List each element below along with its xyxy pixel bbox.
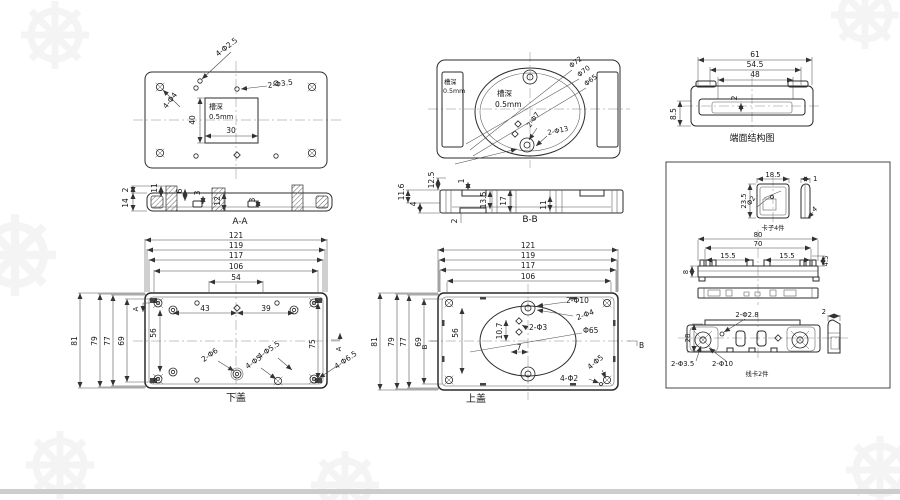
aa-caption: A-A [232, 217, 248, 227]
rail-dim-70: 70 [754, 240, 763, 248]
aa-dim-3a: 3 [193, 190, 202, 195]
rail-dim-4-5: 4.5 [822, 256, 830, 267]
aa-dim-12: 12 [213, 196, 222, 206]
bc-dim-79: 79 [90, 336, 99, 346]
tc-dim-117: 117 [521, 261, 536, 270]
clip-dim-1: 1 [813, 175, 817, 183]
tc-dim-119: 119 [521, 251, 536, 260]
section-b-b: 12.5 11.6 4 1 13.5 17 11 2 B-B [397, 171, 623, 225]
tc-dim-81: 81 [370, 337, 379, 347]
ef-dim-54-5: 54.5 [747, 60, 764, 69]
wc-caption: 线卡2件 [746, 369, 769, 378]
rail-dim-15-5b: 15.5 [779, 252, 794, 260]
aa-dim-14: 14 [121, 198, 130, 208]
rf-slot-note1: 槽深 [444, 77, 457, 86]
bc-section-marker-a2: A [335, 346, 343, 351]
view-round-face: 槽深 0.5mm 槽深 0.5mm Φ72 Φ70 Φ65 2-Φ7 2-Φ13 [428, 52, 630, 168]
tc-dim-10-7: 10.7 [495, 322, 504, 339]
bc-label-2xd6: 2-Φ6 [200, 346, 220, 364]
bc-dim-43: 43 [200, 304, 210, 313]
gp-dim-30: 30 [226, 126, 236, 135]
bb-caption: B-B [522, 215, 537, 225]
gp-label-2xd3-5: 2-Φ3.5 [267, 78, 294, 90]
tc-dim-7: 7 [517, 343, 522, 352]
bc-dim-56: 56 [149, 328, 158, 338]
bc-dim-81: 81 [70, 336, 79, 346]
groove-note-line2: 0.5mm [209, 113, 234, 121]
bc-dim-117: 117 [229, 251, 244, 260]
rf-label-2xd13: 2-Φ13 [547, 125, 569, 137]
bb-dim-17: 17 [499, 196, 508, 206]
clip-dim-4: 4 [810, 205, 819, 214]
rf-slot-note2: 0.5mm [443, 88, 465, 95]
bb-dim-11: 11 [539, 200, 548, 210]
tc-dim-77: 77 [399, 337, 408, 347]
bb-dim-4: 4 [409, 201, 418, 206]
bc-label-4xd5-5: 4-Φ5.5 [256, 339, 282, 361]
technical-drawing-sheet: 槽深 0.5mm 40 30 4-Φ2.5 4-Φ4 2-Φ3.5 槽深 0.5… [0, 0, 900, 500]
tc-label-2xd3: 2-Φ3 [529, 323, 547, 332]
tc-section-marker-b2: B [421, 344, 429, 349]
tc-dim-106: 106 [521, 272, 536, 281]
sheet-edge-strip [0, 489, 900, 494]
tc-dim-56: 56 [451, 328, 460, 338]
bb-dim-13-5: 13.5 [479, 191, 488, 208]
view-end-face: 61 54.5 48 2 8.5 端面结构图 [669, 50, 822, 144]
aa-dim-11: 11 [150, 183, 159, 193]
tc-label-4xd5: 4-Φ5 [586, 353, 606, 372]
bb-dim-11-6: 11.6 [397, 183, 406, 200]
detail-rail: 80 70 15.5 15.5 8 4.5 [682, 230, 830, 305]
bc-dim-54: 54 [231, 273, 241, 282]
rf-note2: 0.5mm [495, 100, 522, 109]
gp-label-4xd2-5: 4-Φ2.5 [214, 36, 240, 59]
tc-label-2xd4: 2-Φ4 [575, 307, 595, 322]
tc-label-4xd2: 4-Φ2 [560, 374, 578, 383]
rail-dim-80: 80 [754, 231, 763, 239]
bb-dim-2: 2 [450, 218, 459, 223]
clip-caption: 卡子4件 [762, 223, 785, 232]
tc-label-2xd10: 2-Φ10 [566, 296, 589, 305]
ef-dim-2: 2 [730, 95, 739, 100]
bc-dim-119: 119 [229, 241, 244, 250]
drawing-canvas: 槽深 0.5mm 40 30 4-Φ2.5 4-Φ4 2-Φ3.5 槽深 0.5… [0, 0, 900, 500]
tc-section-marker-b1: B [639, 341, 644, 350]
tc-dim-79: 79 [387, 337, 396, 347]
bb-dim-1: 1 [457, 178, 466, 183]
clip-dim-18-5: 18.5 [765, 171, 780, 179]
ef-caption: 端面结构图 [729, 132, 774, 144]
rail-dim-15-5a: 15.5 [720, 252, 735, 260]
aa-dim-3b: 3 [248, 197, 257, 202]
wc-dim-2: 2 [822, 308, 826, 316]
tc-label-d65: Φ65 [583, 326, 599, 335]
bc-dim-39: 39 [261, 304, 271, 313]
rf-label-2xd7: 2-Φ7 [525, 111, 541, 129]
tc-caption: 上盖 [466, 392, 486, 405]
bb-dim-12-5: 12.5 [427, 171, 436, 188]
tc-dim-121: 121 [521, 241, 536, 250]
gp-dim-40: 40 [188, 115, 197, 125]
aa-dim-2: 2 [121, 187, 130, 192]
wc-dim-28: 28 [684, 334, 692, 343]
detail-panel: 18.5 23.5 Φ2 1 4 卡子4件 80 70 15.5 15.5 8 … [666, 162, 890, 388]
wc-label-2xd3-5: 2-Φ3.5 [671, 360, 694, 368]
view-groove-plate: 槽深 0.5mm 40 30 4-Φ2.5 4-Φ4 2-Φ3.5 [133, 36, 341, 180]
bc-dim-106: 106 [229, 262, 244, 271]
bc-section-marker-a1: A [132, 306, 140, 311]
gp-label-4xd4: 4-Φ4 [161, 90, 179, 110]
bc-dim-77: 77 [103, 336, 112, 346]
detail-wire-clip: 28 2-Φ2.8 2 2-Φ3.5 2-Φ10 线卡2件 [671, 308, 848, 378]
bc-dim-75: 75 [308, 339, 317, 349]
ef-dim-8-5: 8.5 [669, 108, 678, 120]
rf-note1: 槽深 [497, 88, 512, 98]
section-a-a: 2 14 11 6 3 12 3 A-A [121, 183, 332, 227]
view-top-cover: 121 119 117 106 81 79 77 69 56 10.7 7 2-… [370, 241, 644, 405]
bc-dim-121: 121 [229, 231, 244, 240]
wc-label-2xd10: 2-Φ10 [712, 360, 733, 368]
groove-note-line1: 槽深 [209, 102, 223, 111]
bc-dim-69: 69 [117, 336, 126, 346]
bc-caption: 下盖 [226, 391, 246, 404]
ef-dim-61: 61 [750, 50, 760, 59]
aa-dim-6: 6 [175, 188, 184, 193]
detail-clip: 18.5 23.5 Φ2 1 4 卡子4件 [740, 171, 819, 232]
rail-dim-8: 8 [682, 270, 690, 274]
wc-label-2xd2-8: 2-Φ2.8 [735, 311, 758, 319]
view-bottom-cover: 121 119 117 106 54 81 79 77 69 56 75 43 … [70, 231, 359, 404]
ef-dim-48: 48 [750, 70, 760, 79]
